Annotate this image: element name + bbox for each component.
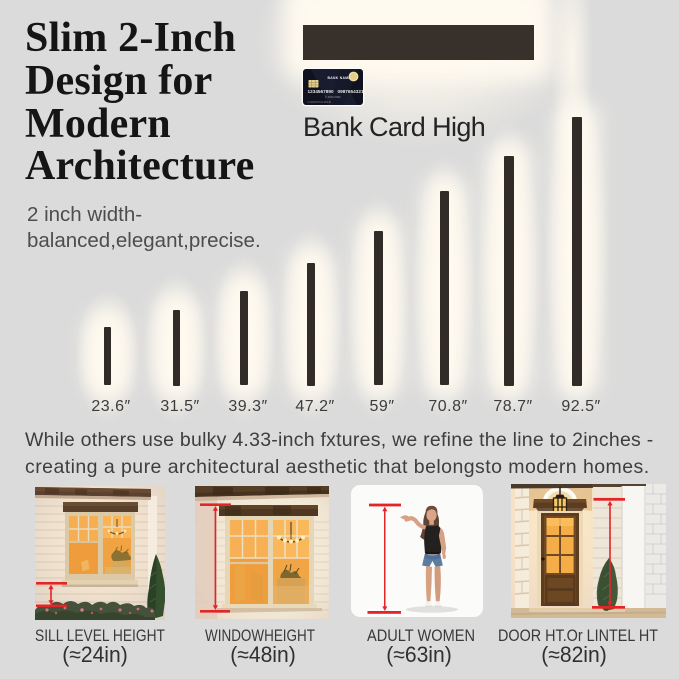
svg-text:1234567890 0987654321: 1234567890 0987654321 (308, 89, 364, 94)
svg-text:CARDHOLDER: CARDHOLDER (308, 100, 332, 104)
svg-text:BANK NAME: BANK NAME (328, 76, 352, 80)
svg-text:© 0000 0000: © 0000 0000 (325, 95, 341, 99)
